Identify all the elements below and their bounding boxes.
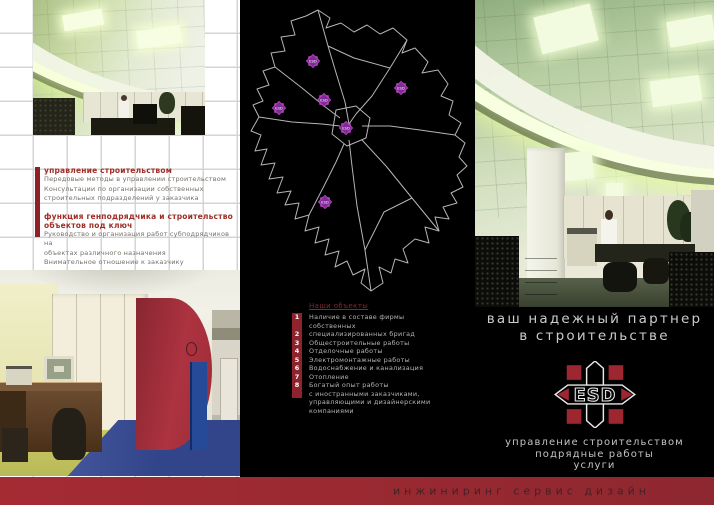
- light-panel: [606, 183, 623, 196]
- drawer-unit: [525, 258, 557, 298]
- services-list: управление строительствомподрядные работ…: [475, 437, 714, 472]
- objects-list-row: 3 Общестроительные работы: [292, 339, 468, 348]
- objects-list-row: 1 Наличие в составе фирмы: [292, 313, 468, 322]
- brochure-page: управление строительством Передовые мето…: [0, 0, 714, 505]
- esd-location-marker: ESD: [394, 81, 409, 96]
- objects-list-row: 4 Отделочные работы: [292, 347, 468, 356]
- section-text-line: объектах различного назначения: [44, 249, 236, 259]
- row-text: Отопление: [309, 373, 349, 381]
- office-interior-photo: [0, 270, 240, 476]
- esd-location-marker: ESD: [272, 101, 287, 116]
- service-line: подрядные работы: [475, 449, 714, 461]
- porthole: [186, 342, 197, 356]
- objects-list-title: Наши объекты: [309, 302, 468, 310]
- office-ceiling-photo: [33, 0, 205, 135]
- objects-list-row: компаниями: [292, 407, 468, 416]
- row-text: Электромонтажные работы: [309, 356, 410, 364]
- plant: [159, 92, 175, 114]
- dark-box: [2, 428, 28, 462]
- ceiling-shade: [0, 270, 240, 304]
- esd-location-marker: ESD: [339, 121, 354, 136]
- svg-text:ESD: ESD: [275, 107, 283, 111]
- row-number: 3: [292, 339, 302, 347]
- shelving-dark: [33, 98, 75, 135]
- esd-location-marker: ESD: [306, 54, 321, 69]
- row-number: 4: [292, 347, 302, 355]
- person: [601, 219, 617, 245]
- row-text: Отделочные работы: [309, 347, 383, 355]
- section-text-line: Консультации по организации собственных: [44, 185, 236, 195]
- pegboard-panel: [669, 252, 714, 307]
- service-line: управление строительством: [475, 437, 714, 449]
- section-body: Руководство и организация работ субподря…: [44, 230, 236, 268]
- row-text: компаниями: [309, 407, 354, 415]
- tagline-line1: ваш надежный партнер: [475, 311, 714, 327]
- svg-text:ESD: ESD: [321, 201, 329, 205]
- person: [119, 100, 129, 118]
- furniture-dark: [181, 106, 205, 135]
- person-head: [605, 210, 613, 220]
- objects-list: Наши объекты 1 Наличие в составе фирмы с…: [292, 302, 468, 415]
- office-chair: [52, 408, 86, 460]
- objects-list-row: 6 Водоснабжение и канализация: [292, 364, 468, 373]
- left-panel: управление строительством Передовые мето…: [0, 0, 240, 505]
- esd-location-marker: ESD: [317, 93, 332, 108]
- objects-list-row: 5 Электромонтажные работы: [292, 356, 468, 365]
- esd-logo: ESD: [553, 361, 637, 428]
- pegboard-panel: [475, 236, 519, 307]
- row-text: собственных: [309, 322, 356, 330]
- row-text: с иностранными заказчиками,: [309, 390, 420, 398]
- svg-text:ESD: ESD: [320, 99, 328, 103]
- row-text: Водоснабжение и канализация: [309, 364, 423, 372]
- svg-text:ESD: ESD: [309, 60, 317, 64]
- objects-list-row: 8 Богатый опыт работы: [292, 381, 468, 390]
- section-text-line: Внимательное отношение к заказчику: [44, 258, 236, 268]
- office-chair: [643, 258, 669, 284]
- cover-panel: ваш надежный партнер в строительстве ESD…: [475, 0, 714, 505]
- person-head: [121, 95, 127, 101]
- objects-list-row: собственных: [292, 322, 468, 331]
- row-text: специализированных бригад: [309, 330, 415, 338]
- objects-list-row: с иностранными заказчиками,: [292, 390, 468, 399]
- row-number: 2: [292, 330, 302, 338]
- row-number: 8: [292, 381, 302, 389]
- section-text-line: Руководство и организация работ субподря…: [44, 230, 236, 249]
- section-text-line: Передовые методы в управлении строительс…: [44, 175, 236, 185]
- row-number: 5: [292, 356, 302, 364]
- section-body: Передовые методы в управлении строительс…: [44, 175, 236, 204]
- footer-bar: инжиниринг сервис дизайн: [0, 477, 714, 505]
- section-heading-contractor-line2: объектов под ключ: [44, 221, 236, 230]
- red-accent-bar: [35, 167, 40, 237]
- monitor: [44, 356, 74, 382]
- tagline-line2: в строительстве: [475, 328, 714, 344]
- objects-list-row: 2 специализированных бригад: [292, 330, 468, 339]
- office-chair: [603, 262, 637, 292]
- section-text-line: строительных подразделений у заказчика: [44, 194, 236, 204]
- copier: [567, 228, 597, 266]
- esd-logo-text: ESD: [574, 385, 617, 406]
- objects-rows: 1 Наличие в составе фирмы собственных 2 …: [292, 313, 468, 415]
- row-number: 7: [292, 373, 302, 381]
- map-panel: ESD ESD ESD: [240, 0, 475, 505]
- svg-text:ESD: ESD: [397, 87, 405, 91]
- moscow-map: ESD ESD ESD: [244, 6, 472, 296]
- objects-list-row: управляющими и дизайнерскими: [292, 398, 468, 407]
- row-number: 6: [292, 364, 302, 372]
- map-markers: ESD ESD ESD: [244, 6, 472, 296]
- section-heading-management: управление строительством: [44, 166, 236, 175]
- row-number: 1: [292, 313, 302, 321]
- section-heading-contractor-line1: функция генподрядчика и строительство: [44, 212, 236, 221]
- company-name: инжиниринг сервис дизайн: [393, 485, 650, 498]
- row-text: Богатый опыт работы: [309, 381, 389, 389]
- service-line: услуги: [475, 460, 714, 472]
- row-text: управляющими и дизайнерскими: [309, 398, 430, 406]
- svg-text:ESD: ESD: [342, 127, 350, 131]
- office-main-photo: [475, 0, 714, 307]
- printer: [6, 366, 32, 385]
- blue-door: [190, 362, 207, 450]
- row-text: Общестроительные работы: [309, 339, 409, 347]
- services-text-block: управление строительством Передовые мето…: [44, 166, 236, 268]
- monitor: [133, 104, 157, 124]
- objects-list-row: 7 Отопление: [292, 373, 468, 382]
- row-text: Наличие в составе фирмы: [309, 313, 404, 321]
- esd-location-marker: ESD: [318, 195, 333, 210]
